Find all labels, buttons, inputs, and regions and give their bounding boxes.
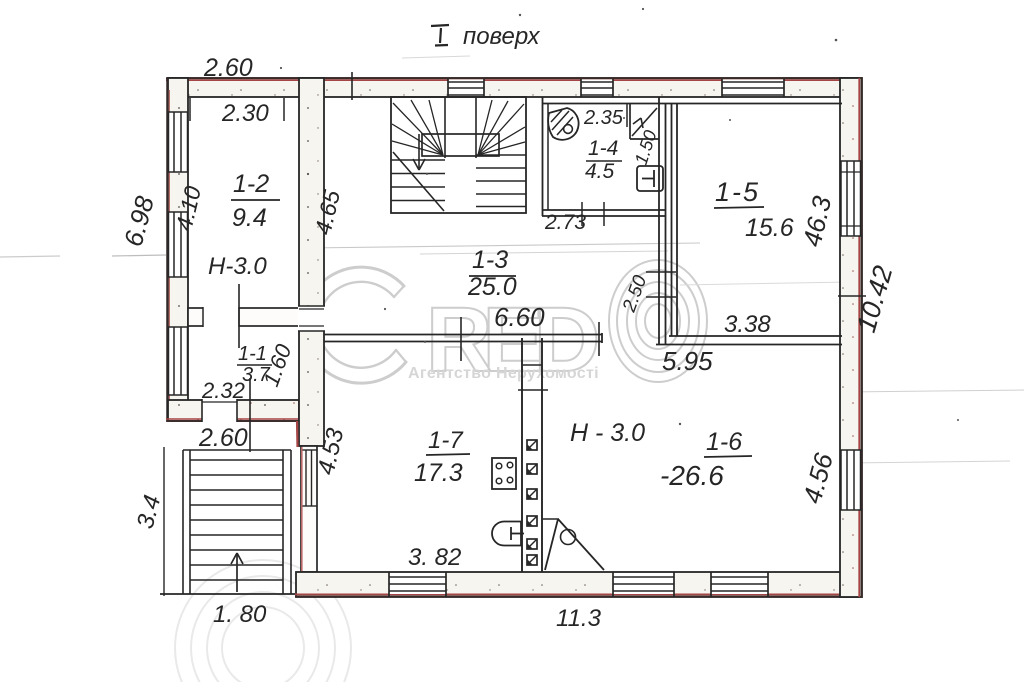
svg-text:1-2: 1-2 <box>233 170 269 198</box>
svg-text:1-4: 1-4 <box>588 137 618 160</box>
svg-text:1-6: 1-6 <box>706 428 742 456</box>
svg-text:15.6: 15.6 <box>745 214 794 242</box>
svg-text:-26.6: -26.6 <box>660 460 724 491</box>
svg-text:2.60: 2.60 <box>203 54 253 82</box>
svg-text:5.95: 5.95 <box>662 346 713 376</box>
svg-text:6.60: 6.60 <box>494 302 545 332</box>
svg-text:1. 80: 1. 80 <box>213 601 267 628</box>
svg-text:2.32: 2.32 <box>201 378 245 403</box>
svg-text:11.3: 11.3 <box>556 605 602 632</box>
svg-text:Агентство Нерухомості: Агентство Нерухомості <box>408 365 599 382</box>
svg-text:поверх: поверх <box>463 23 540 50</box>
svg-text:3. 82: 3. 82 <box>408 544 461 571</box>
svg-text:1-7: 1-7 <box>428 427 464 454</box>
svg-text:2.30: 2.30 <box>221 100 269 127</box>
svg-text:1-1: 1-1 <box>238 343 267 365</box>
svg-text:H-3.0: H-3.0 <box>208 253 267 280</box>
svg-text:1-5: 1-5 <box>715 177 760 207</box>
svg-text:9.4: 9.4 <box>232 204 267 232</box>
svg-text:17.3: 17.3 <box>414 459 463 487</box>
svg-text:3.38: 3.38 <box>724 311 771 338</box>
svg-text:H - 3.0: H - 3.0 <box>570 419 645 447</box>
svg-text:2.60: 2.60 <box>198 424 248 452</box>
svg-text:1-3: 1-3 <box>472 246 508 274</box>
svg-text:25.0: 25.0 <box>467 273 517 301</box>
svg-text:2.35: 2.35 <box>583 107 624 129</box>
svg-text:2.73: 2.73 <box>544 211 586 234</box>
svg-text:4.5: 4.5 <box>585 160 615 183</box>
